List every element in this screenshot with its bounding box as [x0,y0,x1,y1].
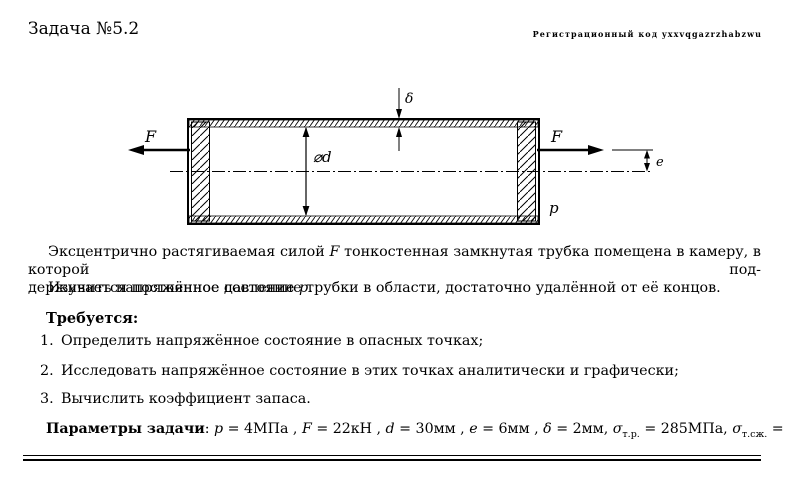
task-item: 3. Вычислить коэффициент запаса. [40,391,760,407]
wall-bottom [189,216,538,223]
wall-top [189,120,538,127]
task-text: Определить напряжённое состояние в опасн… [61,333,483,349]
intro-line-1: Эксцентрично растягиваемая силой F тонко… [28,243,761,279]
diameter-label: ⌀d [313,148,332,166]
ecc-arrow-up-icon [644,150,650,159]
task-item: 2. Исследовать напряжённое состояние в э… [40,363,760,379]
force-arrow-left: F [128,127,190,155]
pressure-label: p [549,199,559,217]
task-item: 1. Определить напряжённое состояние в оп… [40,333,760,349]
delta-label: δ [405,91,413,107]
force-right-label: F [550,127,563,146]
ecc-arrow-down-icon [644,163,650,172]
tube-diagram: F F ⌀d δ e [0,0,785,250]
parameters-label: Параметры задачи [46,421,205,437]
task-number: 2. [40,363,61,379]
study-paragraph: Изучить напряжённое состояние трубки в о… [28,279,761,297]
task-number: 1. [40,333,61,349]
task-number: 3. [40,391,61,407]
task-text: Вычислить коэффициент запаса. [61,391,311,407]
parameters-line: Параметры задачи: p = 4МПа , F = 22кН , … [46,421,766,440]
eccentricity-dimension: e [612,150,664,172]
bottom-rule [23,455,761,461]
tasks-heading: Требуется: [46,310,138,327]
eccentricity-label: e [656,155,664,170]
force-arrow-right: F [537,127,604,155]
document-page: Задача №5.2 Регистрационный код yxxvqgaz… [0,0,785,497]
arrowhead-left-icon [128,145,144,155]
force-left-label: F [144,127,157,146]
arrowhead-right-icon [588,145,604,155]
task-text: Исследовать напряжённое состояние в этих… [61,363,679,379]
delta-arrow-down-icon [396,109,402,119]
